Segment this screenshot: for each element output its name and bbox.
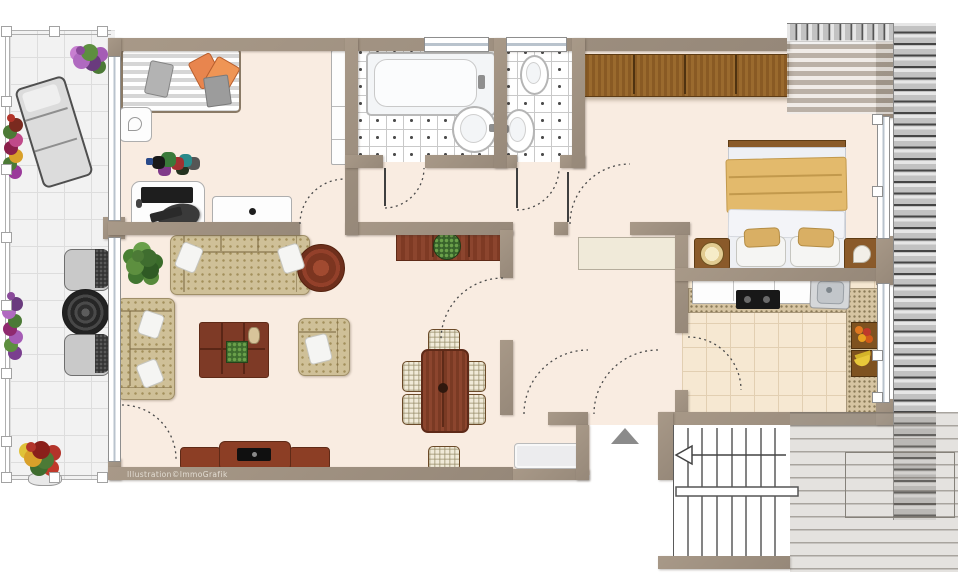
- guest-bed: [121, 48, 241, 113]
- figurine-icon: [248, 327, 260, 344]
- wall-living-top: [345, 222, 513, 235]
- double-bed: [728, 140, 844, 268]
- throw-pillow: [304, 333, 333, 366]
- railing-post: [1, 232, 12, 243]
- hall-shelf: [578, 237, 678, 270]
- window-bathroom: [424, 37, 489, 52]
- staircase: [673, 425, 791, 556]
- toilet: [520, 55, 549, 95]
- window-handle: [872, 186, 883, 197]
- window-terrace-upper: [108, 56, 121, 221]
- wall-entrance-stub: [548, 412, 588, 425]
- watermark-text: Illustration©ImmoGrafik: [127, 470, 228, 479]
- window-handle: [872, 350, 883, 361]
- window-bedroom: [877, 116, 890, 239]
- wall-stair-left: [658, 412, 673, 480]
- flower-box-icon: [7, 114, 15, 122]
- tv-icon: [237, 448, 271, 461]
- wall-living-hall-lower: [500, 340, 513, 415]
- wall-bath-wc: [494, 38, 507, 168]
- office-nightstand: [119, 107, 152, 142]
- sideboard: [396, 232, 508, 261]
- desk-clutter: [146, 158, 153, 165]
- plant-icon: [132, 250, 144, 262]
- window-terrace-lower: [108, 237, 121, 462]
- gray-pillow: [144, 60, 175, 98]
- railing-post: [1, 368, 12, 379]
- sideboard-plant-icon: [433, 232, 461, 260]
- headrest-cushion: [744, 227, 781, 248]
- mouse: [136, 199, 142, 208]
- nightstand-shell: [844, 238, 879, 270]
- wicker-chair: [64, 334, 110, 376]
- window-handle: [872, 392, 883, 403]
- wall-hall-kitchen-upper: [675, 235, 688, 333]
- landing-rect: [845, 452, 955, 518]
- monitor: [141, 187, 193, 203]
- wall-stair-bottom: [658, 556, 790, 569]
- railing-post: [1, 164, 12, 175]
- table-knob: [438, 383, 448, 393]
- cooktop: [736, 290, 780, 309]
- window-handle: [872, 114, 883, 125]
- coffee-table: [199, 322, 269, 378]
- railing-post: [1, 96, 12, 107]
- wardrobe: [582, 54, 789, 97]
- table-plant-icon: [226, 341, 248, 363]
- headrest-cushion: [798, 227, 835, 248]
- round-side-table: [297, 244, 345, 292]
- throw-pillow: [135, 358, 165, 389]
- wall-living-hall-upper: [500, 230, 513, 278]
- railing-post: [1, 300, 12, 311]
- sofa-3-seat: [170, 235, 310, 295]
- railing-post: [1, 472, 12, 483]
- wall-wc-bottom-l: [507, 155, 517, 168]
- railing-post: [49, 26, 60, 37]
- railing-post: [49, 472, 60, 483]
- wall-right-mid: [876, 236, 893, 285]
- dining-table: [421, 349, 469, 433]
- wall-bedroom-kitchen: [675, 268, 878, 281]
- wall-vestibule-right: [576, 425, 589, 480]
- gray-blanket: [203, 74, 232, 107]
- railing-post: [1, 26, 12, 37]
- shell-icon: [853, 245, 871, 263]
- wall-wc-right: [572, 38, 585, 168]
- wall-hall-bedroom: [630, 222, 690, 235]
- wall-office-living: [108, 222, 300, 235]
- flower-box-icon: [7, 292, 15, 300]
- railing-post: [97, 26, 108, 37]
- bath-sink: [452, 106, 497, 153]
- entrance-arrow-icon: [611, 428, 639, 444]
- doormat: [514, 443, 580, 469]
- wc-sink: [503, 109, 535, 153]
- clock-icon: [700, 242, 724, 266]
- sofa-2-seat: [117, 298, 175, 400]
- wall-office-bath: [345, 38, 358, 235]
- throw-pillow: [174, 241, 205, 274]
- blanket: [725, 157, 847, 214]
- knob: [249, 208, 256, 215]
- tub-faucet-icon: [478, 75, 485, 89]
- nightstand-clock: [694, 238, 730, 270]
- railing-post: [1, 436, 12, 447]
- banana-icon: [854, 355, 872, 369]
- railing-post: [97, 472, 108, 483]
- wicker-chair: [64, 249, 110, 291]
- armchair: [298, 318, 350, 376]
- wall-hall-bedroom-stub: [554, 222, 568, 235]
- window-kitchen: [877, 283, 890, 403]
- wall-bath-bottom-l: [345, 155, 383, 168]
- throw-pillow: [137, 309, 166, 340]
- roof-slope-shading: [787, 40, 893, 114]
- flower-pot-icon: [76, 46, 85, 55]
- window-wc: [506, 37, 567, 52]
- floor-plan: Illustration©ImmoGrafik: [0, 0, 960, 587]
- fruit-basket: [851, 322, 878, 349]
- wicker-table: [62, 289, 109, 336]
